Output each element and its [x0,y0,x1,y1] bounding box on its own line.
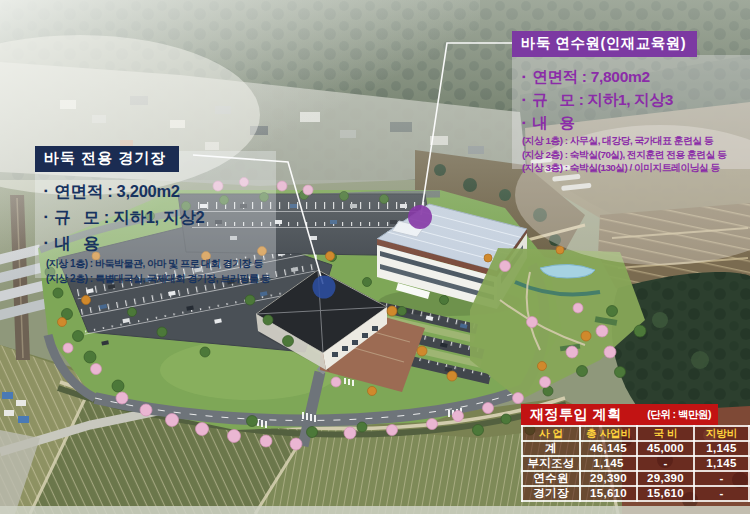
budget-cell: 1,145 [580,456,637,471]
budget-cell: 부지조성 [522,456,580,471]
budget-cell: 연수원 [522,471,580,486]
training-center-callout: 바둑 연수원(인재교육원) ▪ 연면적 : 7,800m2 ▪ 규 모 : 지하… [512,31,697,57]
budget-cell: 46,145 [580,441,637,456]
bullet-icon: ▪ [44,186,47,196]
stadium-spec-scale-text: 규 모 : 지하1, 지상2 [54,204,204,230]
stadium-detail-floor1: (지상 1층) : 바둑박물관, 아마 및 프로 대회 경기장 등 [46,256,276,271]
budget-table-header-bar: 재정투입 계획 (단위 : 백만원) [521,404,718,425]
training-spec-area: ▪ 연면적 : 7,800m2 [522,65,750,88]
budget-table-grid: 사 업 총 사업비 국 비 지방비 계 46,145 45,000 1,145 … [521,425,750,502]
budget-cell: 경기장 [522,486,580,501]
training-spec-area-text: 연면적 : 7,800m2 [532,65,650,88]
budget-cell: 계 [522,441,580,456]
budget-cell: 45,000 [637,441,694,456]
bullet-icon: ▪ [522,72,525,82]
training-center-callout-panel: ▪ 연면적 : 7,800m2 ▪ 규 모 : 지하1, 지상3 ▪ 내 용 (… [512,55,750,169]
budget-cell: 15,610 [637,486,694,501]
budget-cell: 29,390 [637,471,694,486]
photo-bottom-edge [0,506,750,514]
stadium-spec-area: ▪ 연면적 : 3,200m2 [44,178,276,204]
stadium-callout: 바둑 전용 경기장 ▪ 연면적 : 3,200m2 ▪ 규 모 : 지하1, 지… [35,146,179,172]
budget-col-national: 국 비 [637,426,694,441]
training-detail-floor2: (지상 2층) : 숙박실(70실), 전지훈련 전용 훈련실 등 [522,148,750,162]
budget-cell: - [694,471,749,486]
training-spec-contents-text: 내 용 [532,111,574,134]
training-spec-scale-text: 규 모 : 지하1, 지상3 [532,88,673,111]
training-detail-floor1: (지상 1층) : 사무실, 대강당, 국가대표 훈련실 등 [522,134,750,148]
stadium-callout-title: 바둑 전용 경기장 [35,146,179,172]
bullet-icon: ▪ [44,238,47,248]
bullet-icon: ▪ [522,118,525,128]
budget-cell: - [694,486,749,501]
budget-col-project: 사 업 [522,426,580,441]
training-spec-scale: ▪ 규 모 : 지하1, 지상3 [522,88,750,111]
bullet-icon: ▪ [522,95,525,105]
budget-col-local: 지방비 [694,426,749,441]
budget-cell: 1,145 [694,441,749,456]
budget-cell: 1,145 [694,456,749,471]
training-spec-contents: ▪ 내 용 [522,111,750,134]
stadium-spec-contents-text: 내 용 [54,230,99,256]
stadium-spec-contents: ▪ 내 용 [44,230,276,256]
budget-row-stadium: 경기장 15,610 15,610 - [522,486,749,501]
budget-table: 재정투입 계획 (단위 : 백만원) 사 업 총 사업비 국 비 지방비 계 4… [521,404,748,502]
stadium-detail-floor2: (지상 2층) : 특별대국실, 국제대회 경기장, 브리핑룸 등 [46,271,276,286]
stadium-spec-scale: ▪ 규 모 : 지하1, 지상2 [44,204,276,230]
budget-row-training: 연수원 29,390 29,390 - [522,471,749,486]
training-detail-floor3: (지상 3층) : 숙박실(130실) / 이미지트레이닝실 등 [522,161,750,175]
stadium-spec-area-text: 연면적 : 3,200m2 [54,178,179,204]
slide-canvas: 바둑 전용 경기장 ▪ 연면적 : 3,200m2 ▪ 규 모 : 지하1, 지… [0,0,750,514]
budget-cell: 29,390 [580,471,637,486]
budget-cell: 15,610 [580,486,637,501]
budget-col-total: 총 사업비 [580,426,637,441]
budget-row-sum: 계 46,145 45,000 1,145 [522,441,749,456]
bullet-icon: ▪ [44,212,47,222]
budget-cell: - [637,456,694,471]
budget-header-row: 사 업 총 사업비 국 비 지방비 [522,426,749,441]
budget-table-title: 재정투입 계획 [530,406,621,424]
training-center-callout-title: 바둑 연수원(인재교육원) [512,31,697,57]
budget-row-site: 부지조성 1,145 - 1,145 [522,456,749,471]
budget-table-unit: (단위 : 백만원) [647,408,711,422]
